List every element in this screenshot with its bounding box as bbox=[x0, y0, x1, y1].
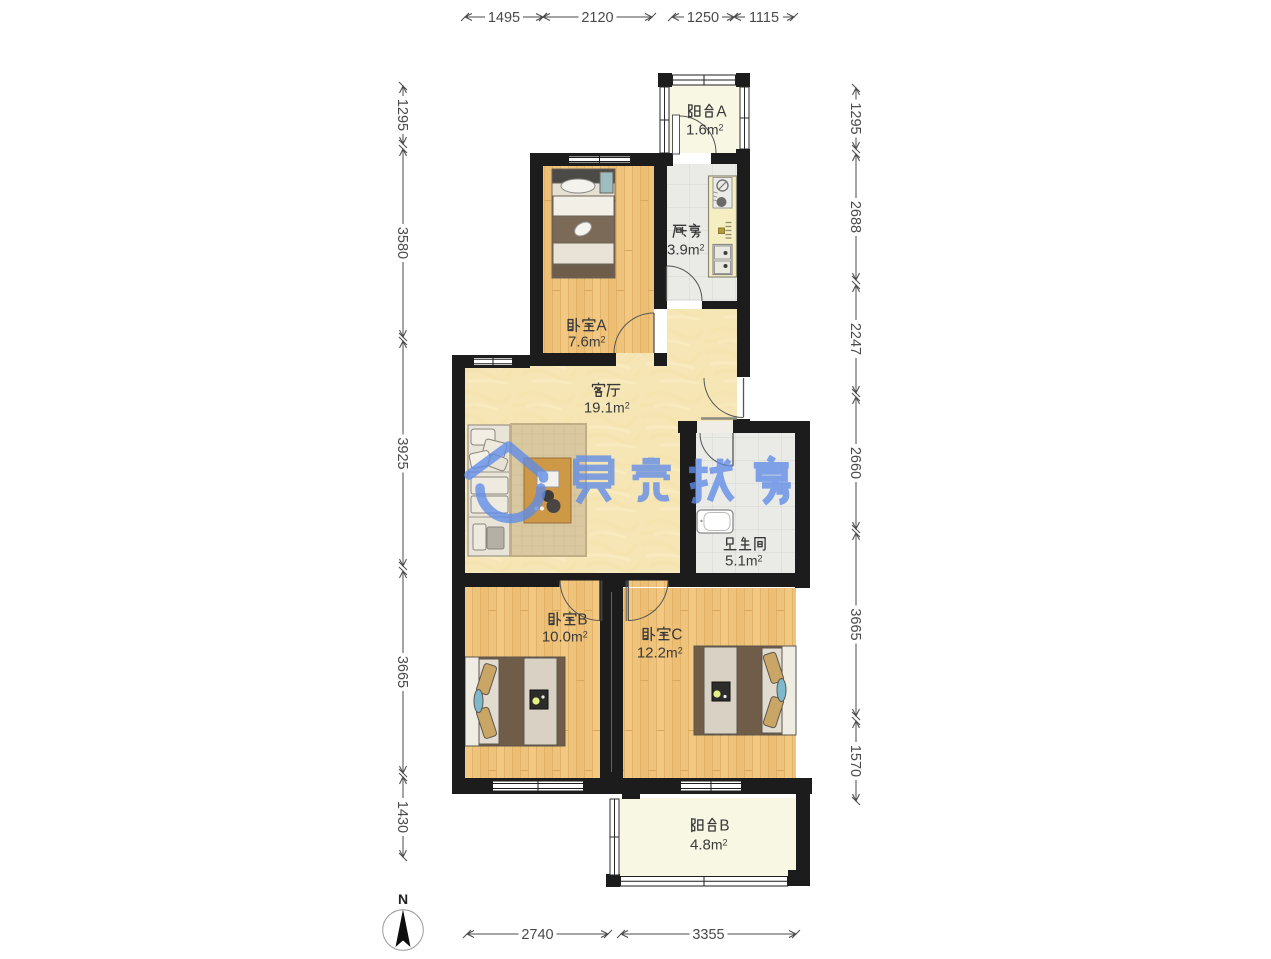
svg-text:3355: 3355 bbox=[692, 927, 724, 943]
svg-text:B: B bbox=[719, 817, 729, 834]
svg-text:1.6m2: 1.6m2 bbox=[686, 121, 724, 138]
svg-text:2120: 2120 bbox=[581, 10, 613, 26]
svg-text:2247: 2247 bbox=[847, 323, 863, 355]
svg-text:19.1m2: 19.1m2 bbox=[584, 399, 630, 416]
svg-text:1115: 1115 bbox=[749, 10, 779, 26]
svg-text:A: A bbox=[596, 317, 607, 334]
svg-text:A: A bbox=[716, 103, 727, 120]
svg-text:10.0m2: 10.0m2 bbox=[542, 628, 588, 645]
svg-text:2740: 2740 bbox=[521, 927, 553, 943]
svg-text:12.2m2: 12.2m2 bbox=[637, 644, 683, 661]
svg-text:1570: 1570 bbox=[847, 745, 863, 777]
svg-text:3580: 3580 bbox=[394, 227, 410, 259]
svg-text:C: C bbox=[671, 626, 682, 643]
svg-text:3.9m2: 3.9m2 bbox=[667, 241, 705, 258]
svg-text:4.8m2: 4.8m2 bbox=[690, 836, 728, 853]
svg-text:7.6m2: 7.6m2 bbox=[568, 333, 606, 350]
svg-text:2688: 2688 bbox=[847, 201, 863, 233]
svg-text:3665: 3665 bbox=[847, 608, 863, 640]
svg-text:N: N bbox=[398, 891, 408, 907]
svg-text:2660: 2660 bbox=[847, 447, 863, 479]
svg-text:1295: 1295 bbox=[394, 99, 410, 131]
svg-text:5.1m2: 5.1m2 bbox=[725, 552, 763, 569]
svg-text:1495: 1495 bbox=[488, 10, 520, 26]
svg-text:1430: 1430 bbox=[394, 801, 410, 833]
svg-text:B: B bbox=[577, 611, 587, 628]
svg-text:1295: 1295 bbox=[847, 102, 863, 134]
svg-text:3925: 3925 bbox=[394, 437, 410, 469]
svg-text:1250: 1250 bbox=[687, 10, 719, 26]
svg-text:3665: 3665 bbox=[394, 656, 410, 688]
